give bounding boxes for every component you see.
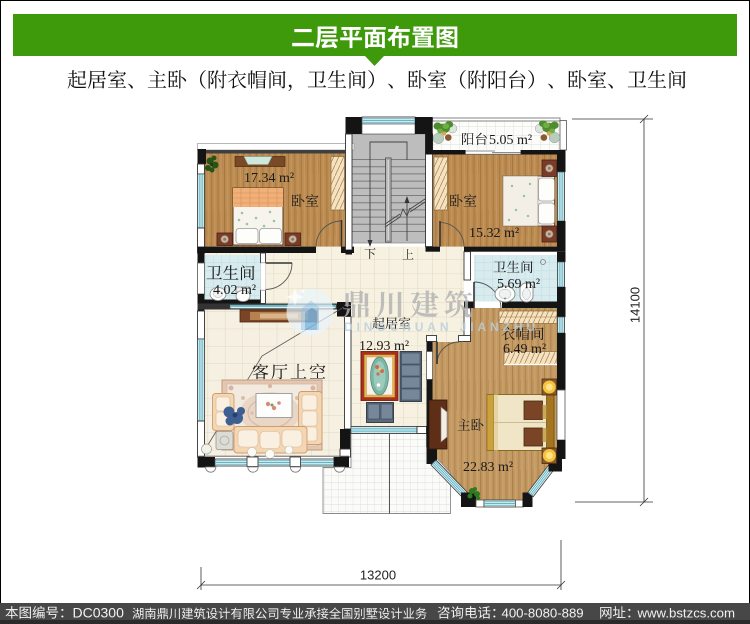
svg-text:6.49 m²: 6.49 m² bbox=[503, 342, 546, 357]
svg-text:4.02 m²: 4.02 m² bbox=[213, 283, 256, 298]
svg-text:13200: 13200 bbox=[360, 568, 396, 583]
svg-text:15.32 m²: 15.32 m² bbox=[469, 226, 519, 241]
svg-text:DC0300: DC0300 bbox=[73, 605, 125, 621]
svg-text:12.93 m²: 12.93 m² bbox=[359, 339, 409, 354]
svg-text:14100: 14100 bbox=[628, 287, 643, 323]
svg-text:DINGCHUAN JIANZHU: DINGCHUAN JIANZHU bbox=[344, 320, 539, 334]
svg-text:17.34 m²: 17.34 m² bbox=[244, 171, 294, 186]
svg-text:22.83 m²: 22.83 m² bbox=[463, 460, 513, 475]
svg-text:400-8080-889: 400-8080-889 bbox=[502, 606, 584, 621]
svg-text:www.bstzcs.com: www.bstzcs.com bbox=[637, 606, 735, 621]
svg-text:5.69 m²: 5.69 m² bbox=[497, 277, 540, 292]
svg-text:5.05 m²: 5.05 m² bbox=[489, 133, 532, 148]
